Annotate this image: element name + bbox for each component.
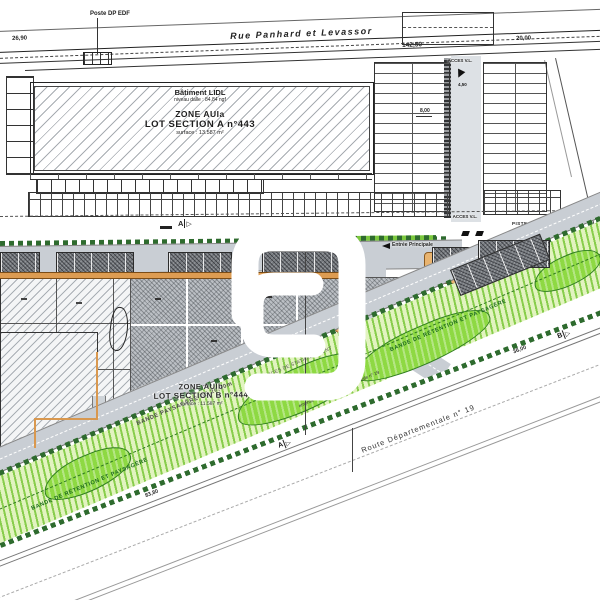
building-text-block: Bâtiment LIDL niveau dalle : 84,84 ngf Z… <box>70 88 330 137</box>
parking-grid-center-line <box>412 63 413 211</box>
poste-edf-box <box>83 52 112 65</box>
poste-edf-label: Poste DP EDF <box>90 11 130 17</box>
access-side-dim-tick <box>416 116 432 117</box>
section-marker-letter: A <box>178 219 183 228</box>
phase-boundary-orange <box>34 418 98 420</box>
access-side-dim: 8,00 <box>420 108 430 114</box>
logo-overlay[interactable] <box>212 218 382 403</box>
bollard-icon <box>461 231 470 236</box>
section-marker-bar <box>184 219 185 228</box>
logo-swirl-icon <box>212 218 382 403</box>
section-marker-dash <box>160 226 172 229</box>
street-dim-right: 20,00 <box>516 35 531 42</box>
parking-row-divider-line <box>484 197 560 198</box>
building-surface: surface : 13.587 m² <box>70 130 330 137</box>
parking-grid-west <box>374 62 450 212</box>
existing-building-dashed-line <box>403 27 493 28</box>
parking-grid-center-line <box>515 63 516 211</box>
access-top-dim: 4,50 <box>458 82 467 87</box>
building-lot: LOT SECTION A n°443 <box>70 119 330 130</box>
building-title: Bâtiment LIDL <box>70 88 330 97</box>
cell-label-mark <box>21 298 27 300</box>
phase-boundary-orange <box>34 418 36 448</box>
poste-edf-leader-line <box>97 18 98 54</box>
access-road-vl <box>451 56 481 222</box>
bollard-icon <box>475 231 484 236</box>
entrance-arrow-icon <box>382 243 390 249</box>
parking-row-divider-line <box>29 199 449 200</box>
rd19-leader-line <box>352 428 353 472</box>
existing-building-outline <box>402 12 494 45</box>
entrance-label: Entrée Principale <box>392 242 433 248</box>
street-dim-left: 26,90 <box>12 35 27 42</box>
cell-label-mark <box>155 298 161 300</box>
building-zone: ZONE AUIa <box>70 109 330 119</box>
access-top-label: ACCES V.L. <box>447 58 473 63</box>
east-boundary-line-2 <box>544 60 572 177</box>
section-marker-triangle-icon: ▷ <box>186 220 191 228</box>
access-bottom-label: ACCES V.L. <box>452 214 478 219</box>
section-marker-a-top: A ▷ <box>178 219 192 228</box>
phase-boundary-orange <box>96 352 98 420</box>
site-plan: Rue Panhard et Levassor 142,50 26,90 20,… <box>0 0 600 600</box>
rd19-name: Route Départementale n° 19 <box>360 403 476 455</box>
cell-label-mark <box>76 302 82 304</box>
